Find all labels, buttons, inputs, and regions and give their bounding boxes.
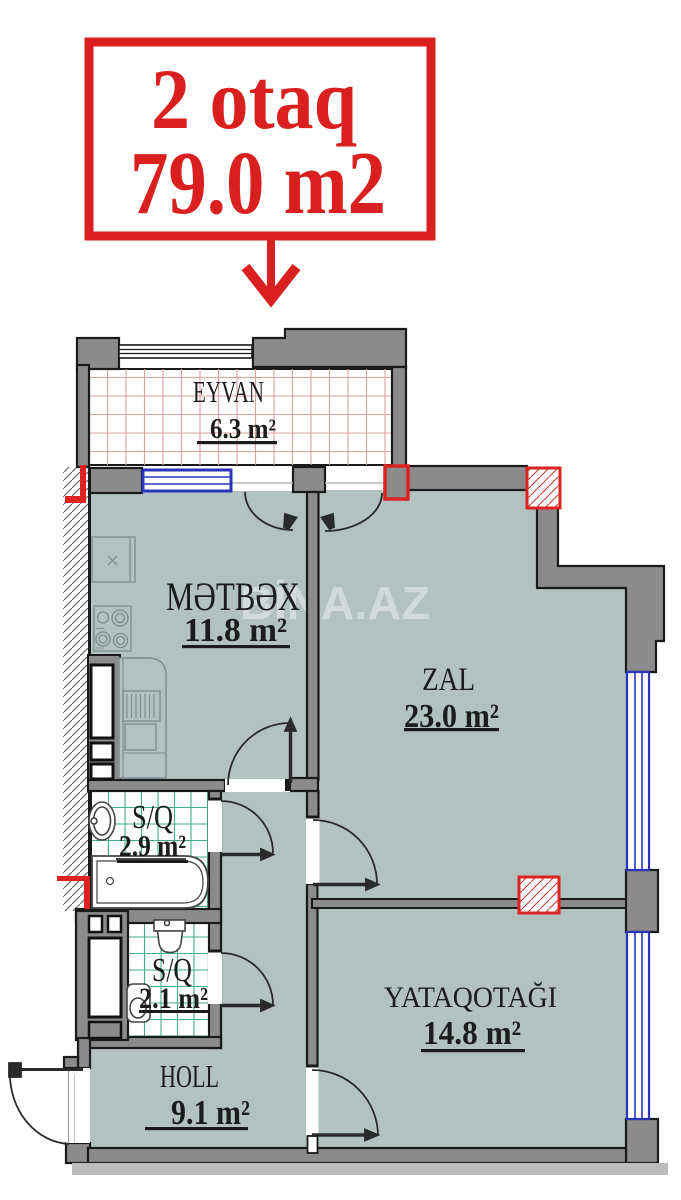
svg-text:14.8 m²: 14.8 m²	[423, 1015, 521, 1052]
svg-text:EYVAN: EYVAN	[193, 374, 264, 409]
svg-text:6.3 m²: 6.3 m²	[210, 414, 276, 445]
svg-text:2 otaq: 2 otaq	[151, 51, 357, 147]
svg-text:YATAQOTAĞI: YATAQOTAĞI	[384, 981, 557, 1014]
svg-text:ZAL: ZAL	[422, 662, 475, 698]
svg-text:2.9 m²: 2.9 m²	[119, 828, 186, 863]
svg-text:79.0 m2: 79.0 m2	[130, 134, 386, 233]
svg-text:9.1 m²: 9.1 m²	[171, 1093, 250, 1132]
svg-text:HOLL: HOLL	[160, 1058, 219, 1094]
svg-text:11.8 m²: 11.8 m²	[184, 612, 287, 649]
